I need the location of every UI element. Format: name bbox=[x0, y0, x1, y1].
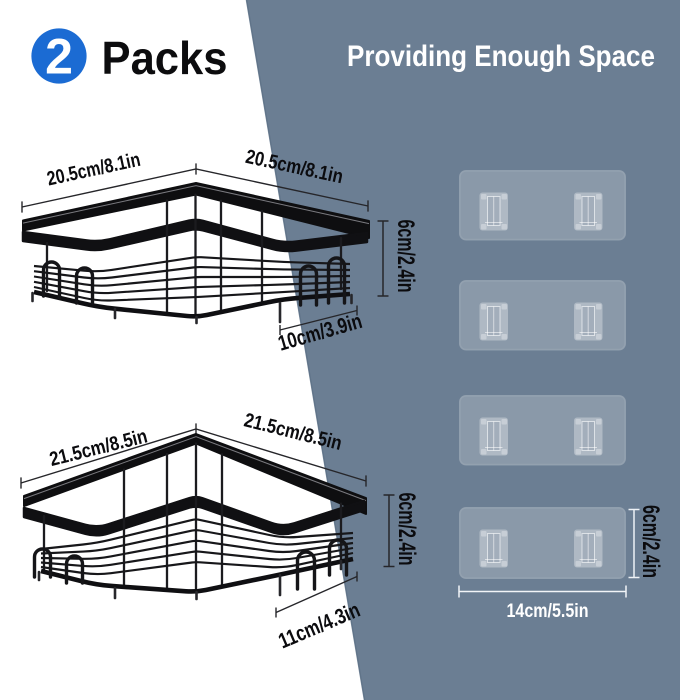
svg-text:Packs: Packs bbox=[102, 32, 228, 84]
svg-text:6cm/2.4in: 6cm/2.4in bbox=[392, 220, 419, 293]
svg-text:6cm/2.4in: 6cm/2.4in bbox=[637, 505, 664, 578]
svg-text:Providing Enough Space: Providing Enough Space bbox=[347, 40, 655, 73]
svg-text:14cm/5.5in: 14cm/5.5in bbox=[507, 600, 589, 622]
svg-text:6cm/2.4in: 6cm/2.4in bbox=[393, 493, 420, 566]
svg-text:2: 2 bbox=[45, 29, 73, 85]
